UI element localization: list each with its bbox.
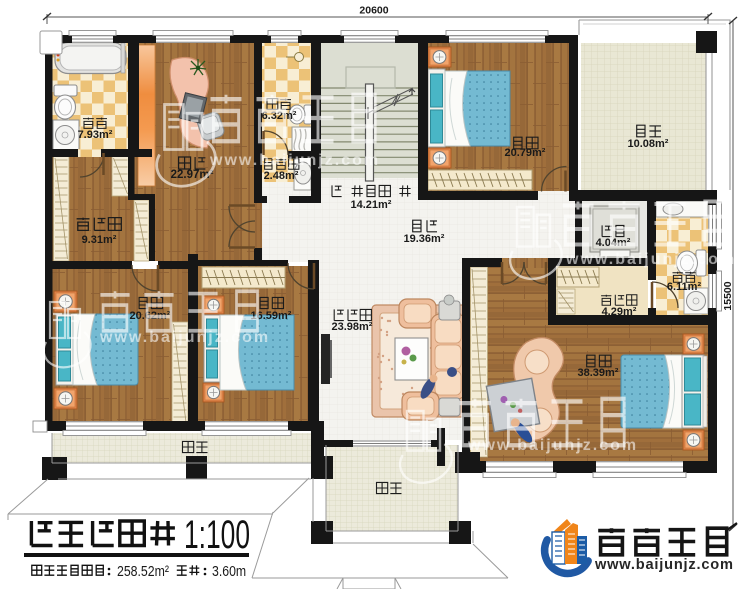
- svg-text:www.baijunjz.com: www.baijunjz.com: [594, 557, 734, 573]
- svg-text:www.baijunjz.com: www.baijunjz.com: [99, 329, 270, 346]
- svg-text:7.93m²: 7.93m²: [78, 129, 113, 141]
- svg-text:258.52m²: 258.52m²: [117, 563, 169, 579]
- svg-text:4.29m²: 4.29m²: [602, 306, 637, 318]
- svg-text:6.11m²: 6.11m²: [667, 281, 702, 293]
- svg-text:20600: 20600: [359, 5, 388, 17]
- svg-text:3.60m: 3.60m: [212, 563, 246, 579]
- svg-text:www.baijunjz.com: www.baijunjz.com: [467, 437, 638, 454]
- svg-text:23.98m²: 23.98m²: [332, 321, 373, 333]
- svg-text:www.baijunjz.com: www.baijunjz.com: [209, 152, 380, 169]
- svg-text:19.36m²: 19.36m²: [404, 233, 445, 245]
- svg-text:10.08m²: 10.08m²: [628, 138, 669, 150]
- svg-text:2.48m²: 2.48m²: [264, 170, 299, 182]
- svg-text:15500: 15500: [722, 281, 734, 310]
- svg-text:20.79m²: 20.79m²: [505, 147, 546, 159]
- svg-text:9.31m²: 9.31m²: [82, 234, 117, 246]
- svg-text:14.21m²: 14.21m²: [351, 199, 392, 211]
- svg-text:38.39m²: 38.39m²: [578, 367, 619, 379]
- svg-text:www.baijunjz.com: www.baijunjz.com: [565, 251, 736, 268]
- svg-text:1:100: 1:100: [184, 513, 250, 558]
